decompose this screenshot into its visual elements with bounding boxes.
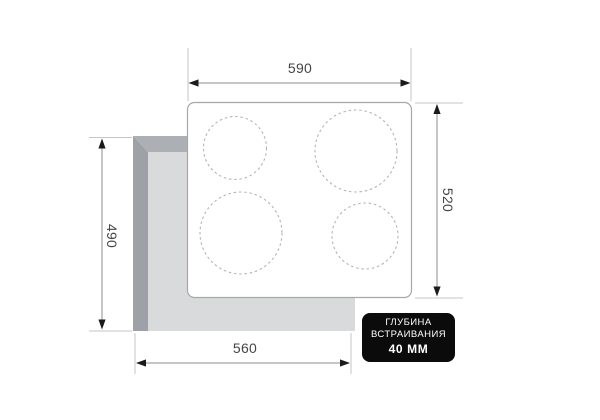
badge-line-2: ВСТРАИВАНИЯ — [371, 329, 446, 341]
arrow-up-icon — [98, 139, 105, 149]
arrow-right-icon — [340, 359, 350, 366]
installation-depth-badge: ГЛУБИНА ВСТРАИВАНИЯ 40 ММ — [362, 313, 455, 362]
arrow-right-icon — [401, 79, 411, 86]
cutout-left-edge — [133, 136, 148, 331]
arrow-left-icon — [189, 79, 199, 86]
dimension-label-right-depth: 520 — [440, 188, 456, 212]
arrow-left-icon — [136, 359, 146, 366]
installation-diagram: 590 520 490 560 ГЛУБИНА ВСТРАИВАНИЯ 40 М… — [0, 0, 600, 420]
dimension-label-top-width: 590 — [288, 60, 312, 76]
arrow-up-icon — [433, 104, 440, 114]
arrow-down-icon — [433, 287, 440, 297]
dimension-label-bottom-cutout-width: 560 — [233, 340, 257, 356]
badge-depth-value: 40 ММ — [389, 342, 429, 357]
dimension-label-left-cutout-depth: 490 — [104, 224, 120, 248]
arrow-down-icon — [98, 320, 105, 330]
badge-line-1: ГЛУБИНА — [385, 317, 431, 329]
